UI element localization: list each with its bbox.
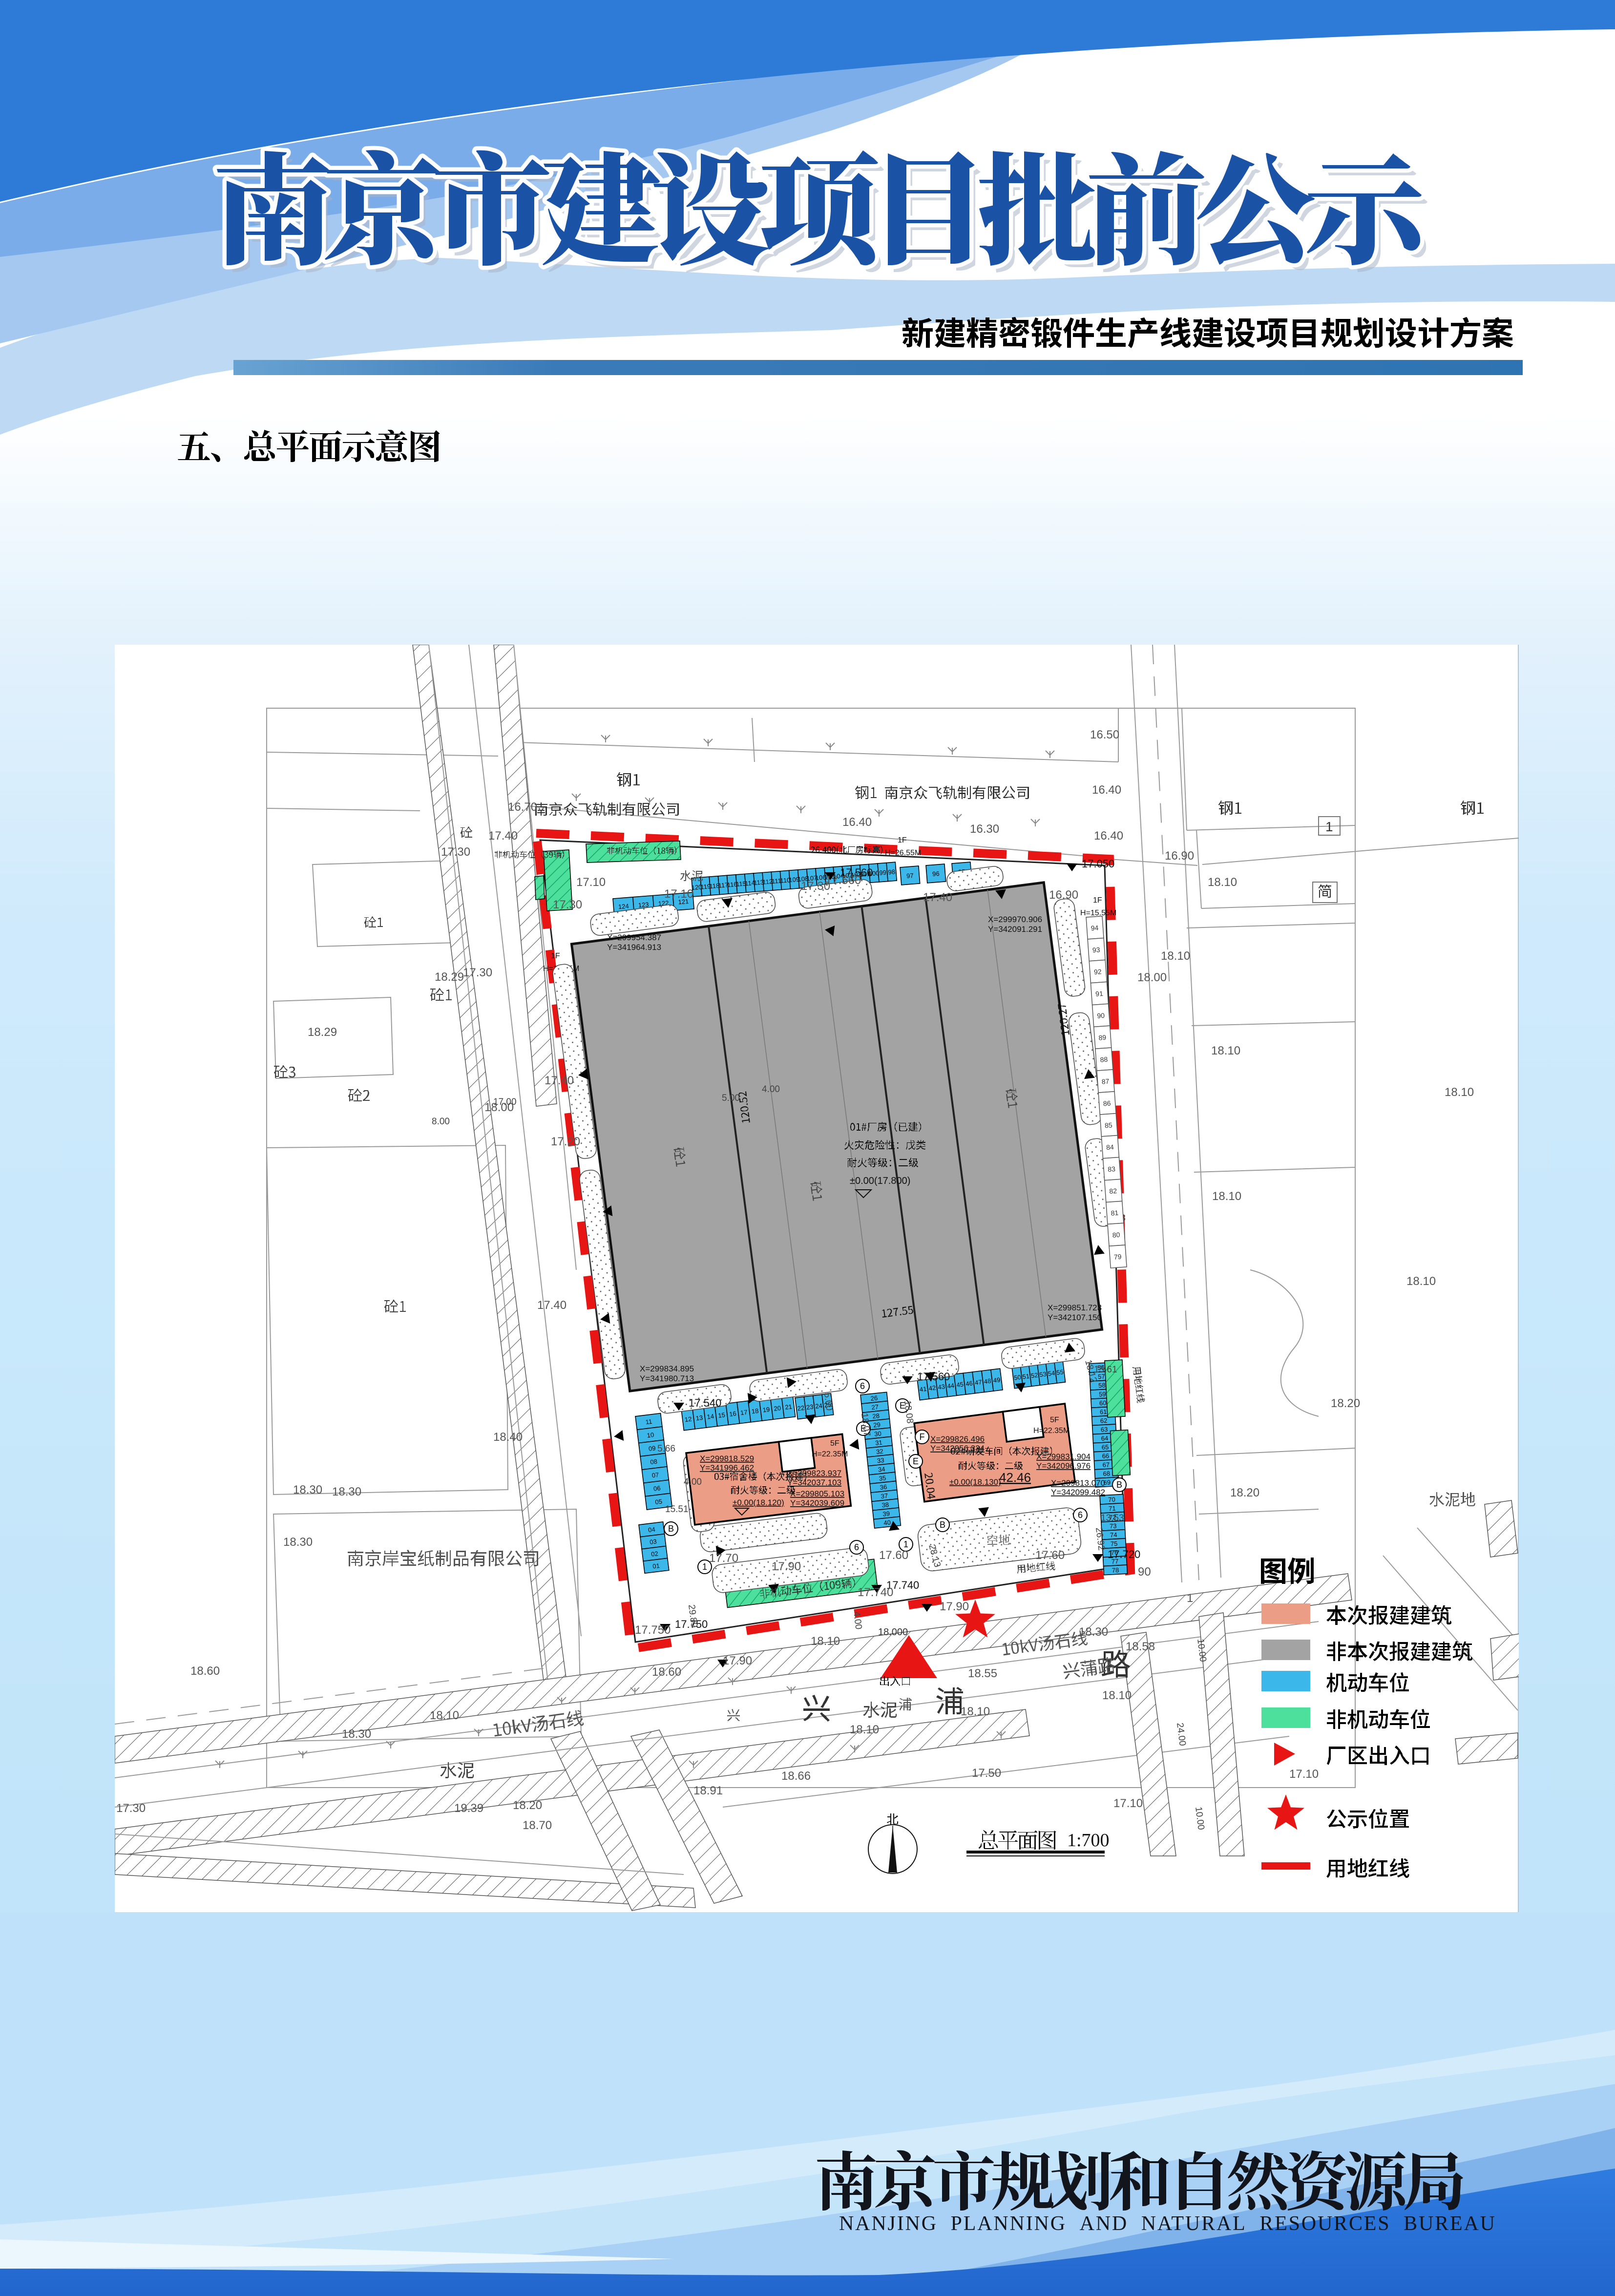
svg-text:43: 43 xyxy=(938,1383,945,1391)
svg-text:97: 97 xyxy=(906,872,914,880)
svg-text:64: 64 xyxy=(1101,1434,1108,1442)
svg-text:18.40: 18.40 xyxy=(493,1431,523,1444)
svg-text:H=15.55M: H=15.55M xyxy=(1080,909,1116,917)
svg-text:17.30: 17.30 xyxy=(441,845,470,859)
svg-text:Y=341996.462: Y=341996.462 xyxy=(700,1463,754,1473)
svg-text:54: 54 xyxy=(1048,1369,1055,1377)
svg-text:59: 59 xyxy=(1099,1390,1106,1398)
svg-text:36: 36 xyxy=(880,1483,887,1491)
svg-text:42: 42 xyxy=(928,1384,936,1392)
svg-text:11: 11 xyxy=(645,1418,652,1426)
svg-text:B: B xyxy=(940,1520,945,1530)
svg-text:X=299826.496: X=299826.496 xyxy=(930,1434,985,1444)
svg-text:Y=342039.609: Y=342039.609 xyxy=(790,1498,844,1508)
svg-text:80: 80 xyxy=(1112,1231,1120,1239)
svg-text:Y=342099.482: Y=342099.482 xyxy=(1051,1488,1105,1497)
svg-text:84: 84 xyxy=(1106,1143,1114,1151)
svg-text:17.60: 17.60 xyxy=(1035,1549,1065,1562)
svg-text:66: 66 xyxy=(1102,1452,1109,1460)
svg-text:81: 81 xyxy=(1111,1209,1119,1217)
svg-text:37: 37 xyxy=(881,1492,888,1500)
svg-text:18.00: 18.00 xyxy=(1137,971,1167,984)
svg-text:X=299818.529: X=299818.529 xyxy=(700,1454,754,1463)
svg-text:18.70: 18.70 xyxy=(523,1819,552,1832)
svg-text:34: 34 xyxy=(878,1465,885,1473)
svg-text:18.66: 18.66 xyxy=(781,1769,811,1783)
svg-text:1F: 1F xyxy=(898,836,907,844)
svg-text:5.66: 5.66 xyxy=(657,1444,675,1454)
svg-text:01: 01 xyxy=(652,1562,660,1570)
svg-text:35: 35 xyxy=(879,1474,886,1482)
svg-text:18.29: 18.29 xyxy=(308,1026,337,1039)
svg-text:E: E xyxy=(913,1456,919,1466)
svg-text:75: 75 xyxy=(1111,1540,1118,1548)
svg-text:18.20: 18.20 xyxy=(1230,1486,1259,1499)
svg-text:67: 67 xyxy=(1102,1461,1110,1469)
svg-text:90: 90 xyxy=(1138,1565,1151,1579)
svg-text:17.720: 17.720 xyxy=(1108,1548,1140,1560)
svg-text:17.560: 17.560 xyxy=(825,874,861,887)
svg-text:63: 63 xyxy=(1100,1426,1108,1433)
svg-text:8.00: 8.00 xyxy=(432,1116,450,1127)
svg-text:93: 93 xyxy=(1092,946,1100,954)
svg-text:22: 22 xyxy=(797,1404,805,1412)
svg-text:44: 44 xyxy=(947,1382,955,1390)
svg-text:124: 124 xyxy=(618,903,629,911)
svg-text:90: 90 xyxy=(1097,1011,1105,1020)
svg-text:18.000: 18.000 xyxy=(878,1627,908,1638)
svg-text:53: 53 xyxy=(1039,1370,1047,1379)
svg-text:32: 32 xyxy=(876,1448,883,1455)
svg-text:17.00: 17.00 xyxy=(493,1097,517,1107)
svg-text:40: 40 xyxy=(883,1518,891,1526)
svg-text:H=26.55M: H=26.55M xyxy=(885,849,921,857)
svg-text:79: 79 xyxy=(1113,1253,1122,1261)
svg-text:99: 99 xyxy=(879,869,887,877)
svg-text:17.540: 17.540 xyxy=(689,1397,721,1409)
svg-text:18.91: 18.91 xyxy=(693,1784,723,1797)
svg-text:18.30: 18.30 xyxy=(293,1483,322,1496)
svg-text:18.20: 18.20 xyxy=(513,1799,542,1812)
svg-text:33: 33 xyxy=(877,1456,884,1464)
svg-text:18.55: 18.55 xyxy=(968,1667,997,1680)
svg-text:1F: 1F xyxy=(1093,896,1102,905)
svg-text:17.30: 17.30 xyxy=(463,966,492,979)
svg-text:Y=342107.150: Y=342107.150 xyxy=(1048,1313,1102,1322)
svg-text:1: 1 xyxy=(702,1562,707,1572)
svg-text:Y=342056.334: Y=342056.334 xyxy=(930,1444,985,1453)
svg-text:20: 20 xyxy=(774,1404,781,1412)
svg-text:68: 68 xyxy=(1103,1470,1110,1477)
svg-text:17.40: 17.40 xyxy=(537,1299,566,1312)
svg-text:X=299851.723: X=299851.723 xyxy=(1048,1303,1102,1312)
svg-text:62: 62 xyxy=(1100,1417,1108,1425)
svg-text:17.740: 17.740 xyxy=(858,1586,893,1599)
svg-text:18.30: 18.30 xyxy=(342,1727,371,1741)
svg-text:17.70: 17.70 xyxy=(709,1552,738,1565)
svg-text:94: 94 xyxy=(1091,924,1099,932)
svg-text:18.10: 18.10 xyxy=(1212,1190,1241,1203)
svg-text:18.30: 18.30 xyxy=(1079,1625,1108,1639)
svg-text:70: 70 xyxy=(1108,1496,1115,1503)
svg-text:17.60: 17.60 xyxy=(879,1549,908,1562)
svg-text:17.10: 17.10 xyxy=(1289,1768,1319,1781)
svg-text:5.00: 5.00 xyxy=(822,1392,834,1411)
svg-text:6: 6 xyxy=(860,1381,865,1391)
svg-text:Y=341964.913: Y=341964.913 xyxy=(607,943,661,952)
svg-text:16.30: 16.30 xyxy=(970,822,999,836)
svg-text:65: 65 xyxy=(1101,1443,1109,1451)
svg-text:31: 31 xyxy=(875,1439,882,1447)
svg-text:16.40: 16.40 xyxy=(842,816,872,829)
svg-text:18.60: 18.60 xyxy=(652,1665,681,1679)
svg-text:1: 1 xyxy=(1325,819,1333,834)
svg-text:85: 85 xyxy=(1104,1121,1112,1129)
svg-text:4.00: 4.00 xyxy=(684,1477,702,1487)
svg-text:04: 04 xyxy=(648,1526,655,1534)
svg-text:86: 86 xyxy=(1103,1099,1111,1107)
svg-text:18.10: 18.10 xyxy=(1161,949,1190,963)
svg-text:16.40: 16.40 xyxy=(1092,783,1121,797)
svg-text:17.50: 17.50 xyxy=(972,1767,1001,1780)
svg-text:18: 18 xyxy=(751,1407,759,1415)
svg-text:18.30: 18.30 xyxy=(332,1485,361,1498)
svg-text:Y=342091.291: Y=342091.291 xyxy=(988,925,1042,934)
svg-text:45: 45 xyxy=(956,1381,964,1389)
svg-text:1:700: 1:700 xyxy=(1067,1830,1110,1851)
svg-text:15.51: 15.51 xyxy=(665,1504,689,1515)
svg-text:15.61: 15.61 xyxy=(1094,1365,1117,1375)
svg-text:17: 17 xyxy=(740,1409,748,1417)
svg-text:17.750: 17.750 xyxy=(635,1623,671,1637)
svg-text:Y=341980.713: Y=341980.713 xyxy=(640,1374,694,1383)
svg-text:18.10: 18.10 xyxy=(1406,1275,1436,1288)
svg-text:46: 46 xyxy=(965,1379,973,1388)
svg-text:14: 14 xyxy=(707,1412,714,1421)
svg-text:91: 91 xyxy=(1095,990,1104,998)
svg-text:96: 96 xyxy=(932,870,940,878)
svg-text:H=22.35M: H=22.35M xyxy=(812,1450,848,1458)
svg-text:6: 6 xyxy=(1078,1510,1083,1520)
svg-text:89: 89 xyxy=(1098,1033,1107,1042)
svg-text:17.050: 17.050 xyxy=(1082,858,1114,870)
svg-text:18.10: 18.10 xyxy=(961,1705,990,1718)
svg-text:18.29: 18.29 xyxy=(435,970,464,984)
svg-text:47: 47 xyxy=(974,1378,982,1387)
svg-text:13.53: 13.53 xyxy=(1101,1513,1124,1523)
svg-text:05: 05 xyxy=(655,1497,663,1506)
svg-text:61: 61 xyxy=(1100,1408,1107,1416)
svg-text:X=299823.937: X=299823.937 xyxy=(787,1469,841,1478)
svg-text:98: 98 xyxy=(888,868,896,876)
svg-text:09: 09 xyxy=(648,1444,656,1453)
svg-text:17.90: 17.90 xyxy=(723,1654,752,1667)
svg-text:21: 21 xyxy=(785,1403,793,1411)
svg-text:50: 50 xyxy=(1013,1373,1021,1382)
svg-text:5.00: 5.00 xyxy=(722,1093,740,1103)
svg-text:18.60: 18.60 xyxy=(190,1664,220,1678)
svg-text:58: 58 xyxy=(1098,1382,1106,1390)
svg-text:B: B xyxy=(668,1524,674,1534)
svg-text:Y=342037.103: Y=342037.103 xyxy=(787,1478,841,1487)
svg-text:19.39: 19.39 xyxy=(454,1802,483,1815)
svg-text:06: 06 xyxy=(653,1484,661,1493)
svg-text:02: 02 xyxy=(650,1550,658,1558)
svg-text:5F: 5F xyxy=(830,1439,839,1448)
svg-text:18.58: 18.58 xyxy=(1126,1640,1155,1653)
svg-text:X=299834.895: X=299834.895 xyxy=(640,1364,694,1373)
svg-text:17.90: 17.90 xyxy=(940,1600,969,1613)
svg-text:±0.00(18.130): ±0.00(18.130) xyxy=(949,1477,1001,1487)
svg-text:30: 30 xyxy=(874,1430,882,1437)
svg-text:17.90: 17.90 xyxy=(772,1560,801,1573)
svg-text:18.30: 18.30 xyxy=(283,1536,313,1549)
svg-text:55: 55 xyxy=(1056,1368,1064,1376)
svg-text:12: 12 xyxy=(684,1415,692,1424)
svg-text:18.20: 18.20 xyxy=(1331,1397,1360,1410)
svg-text:15: 15 xyxy=(718,1411,726,1419)
svg-text:16.70: 16.70 xyxy=(508,800,537,814)
svg-text:16: 16 xyxy=(729,1410,736,1418)
svg-text:29: 29 xyxy=(873,1421,881,1429)
svg-text:5F: 5F xyxy=(1050,1416,1059,1424)
svg-text:4.00: 4.00 xyxy=(851,1611,863,1630)
svg-text:23: 23 xyxy=(806,1403,814,1411)
svg-text:78: 78 xyxy=(1112,1566,1119,1574)
svg-text:27: 27 xyxy=(871,1403,879,1411)
svg-text:16.90: 16.90 xyxy=(1049,888,1078,902)
svg-text:X=299970.906: X=299970.906 xyxy=(988,915,1042,924)
svg-text:16.90: 16.90 xyxy=(1165,849,1194,863)
svg-text:16.40: 16.40 xyxy=(1094,829,1123,843)
svg-text:X=299805.103: X=299805.103 xyxy=(790,1489,844,1498)
svg-text:17.40: 17.40 xyxy=(545,1074,574,1087)
svg-text:26: 26 xyxy=(870,1394,878,1402)
svg-text:1: 1 xyxy=(903,1539,908,1549)
svg-text:17.10: 17.10 xyxy=(664,887,693,901)
svg-text:87: 87 xyxy=(1101,1077,1110,1086)
svg-text:51: 51 xyxy=(1022,1372,1030,1381)
svg-text:X=299954.387: X=299954.387 xyxy=(607,933,661,942)
svg-text:24: 24 xyxy=(815,1402,823,1410)
svg-text:38: 38 xyxy=(881,1501,889,1509)
svg-text:52: 52 xyxy=(1030,1371,1038,1380)
svg-text:18.10: 18.10 xyxy=(430,1709,459,1722)
svg-text:07: 07 xyxy=(651,1471,659,1479)
svg-text:10: 10 xyxy=(647,1431,654,1439)
svg-text:39: 39 xyxy=(882,1510,890,1517)
svg-text:18.10: 18.10 xyxy=(811,1635,840,1648)
svg-text:82: 82 xyxy=(1109,1187,1117,1195)
svg-text:92: 92 xyxy=(1094,968,1102,976)
svg-text:18.10: 18.10 xyxy=(850,1723,879,1736)
svg-text:H=22.35M: H=22.35M xyxy=(1033,1427,1070,1435)
svg-text:18.10: 18.10 xyxy=(1211,1044,1240,1057)
svg-text:60: 60 xyxy=(1099,1399,1107,1407)
svg-text:74: 74 xyxy=(1110,1531,1117,1539)
svg-text:18.10: 18.10 xyxy=(1208,876,1237,889)
svg-text:B: B xyxy=(1116,1480,1122,1490)
svg-text:28: 28 xyxy=(872,1412,880,1420)
svg-text:6: 6 xyxy=(854,1542,859,1552)
svg-text:F: F xyxy=(920,1432,925,1442)
svg-text:17.10: 17.10 xyxy=(1113,1797,1143,1810)
svg-text:16.50: 16.50 xyxy=(1090,728,1119,741)
svg-text:1: 1 xyxy=(1187,1592,1193,1605)
svg-text:88: 88 xyxy=(1100,1055,1108,1064)
svg-text:17.20: 17.20 xyxy=(551,1135,580,1148)
svg-text:03: 03 xyxy=(649,1538,657,1546)
svg-text:42.46: 42.46 xyxy=(999,1470,1031,1485)
svg-text:X=299813.070: X=299813.070 xyxy=(1051,1478,1105,1488)
svg-text:±0.00(18.120): ±0.00(18.120) xyxy=(733,1498,784,1507)
svg-text:08: 08 xyxy=(650,1458,658,1466)
svg-text:13: 13 xyxy=(695,1414,703,1422)
svg-text:4.00: 4.00 xyxy=(762,1084,780,1095)
svg-text:71: 71 xyxy=(1109,1504,1116,1512)
svg-text:17.40: 17.40 xyxy=(488,829,518,843)
svg-text:X=299831.904: X=299831.904 xyxy=(1036,1452,1091,1461)
svg-text:18.10: 18.10 xyxy=(1102,1689,1132,1702)
svg-text:48: 48 xyxy=(984,1377,991,1386)
svg-text:18.10: 18.10 xyxy=(1445,1086,1474,1099)
svg-text:Y=342096.976: Y=342096.976 xyxy=(1036,1461,1091,1471)
svg-text:19: 19 xyxy=(762,1406,770,1414)
svg-text:1F: 1F xyxy=(551,952,560,960)
svg-text:17.30: 17.30 xyxy=(553,898,582,911)
svg-text:±0.00(17.800): ±0.00(17.800) xyxy=(850,1176,910,1186)
svg-text:17.10: 17.10 xyxy=(576,876,606,889)
svg-text:41: 41 xyxy=(919,1385,927,1393)
svg-text:83: 83 xyxy=(1108,1165,1116,1173)
svg-text:17.30: 17.30 xyxy=(116,1802,146,1815)
svg-text:17.40: 17.40 xyxy=(923,891,952,904)
svg-text:49: 49 xyxy=(993,1376,1001,1384)
